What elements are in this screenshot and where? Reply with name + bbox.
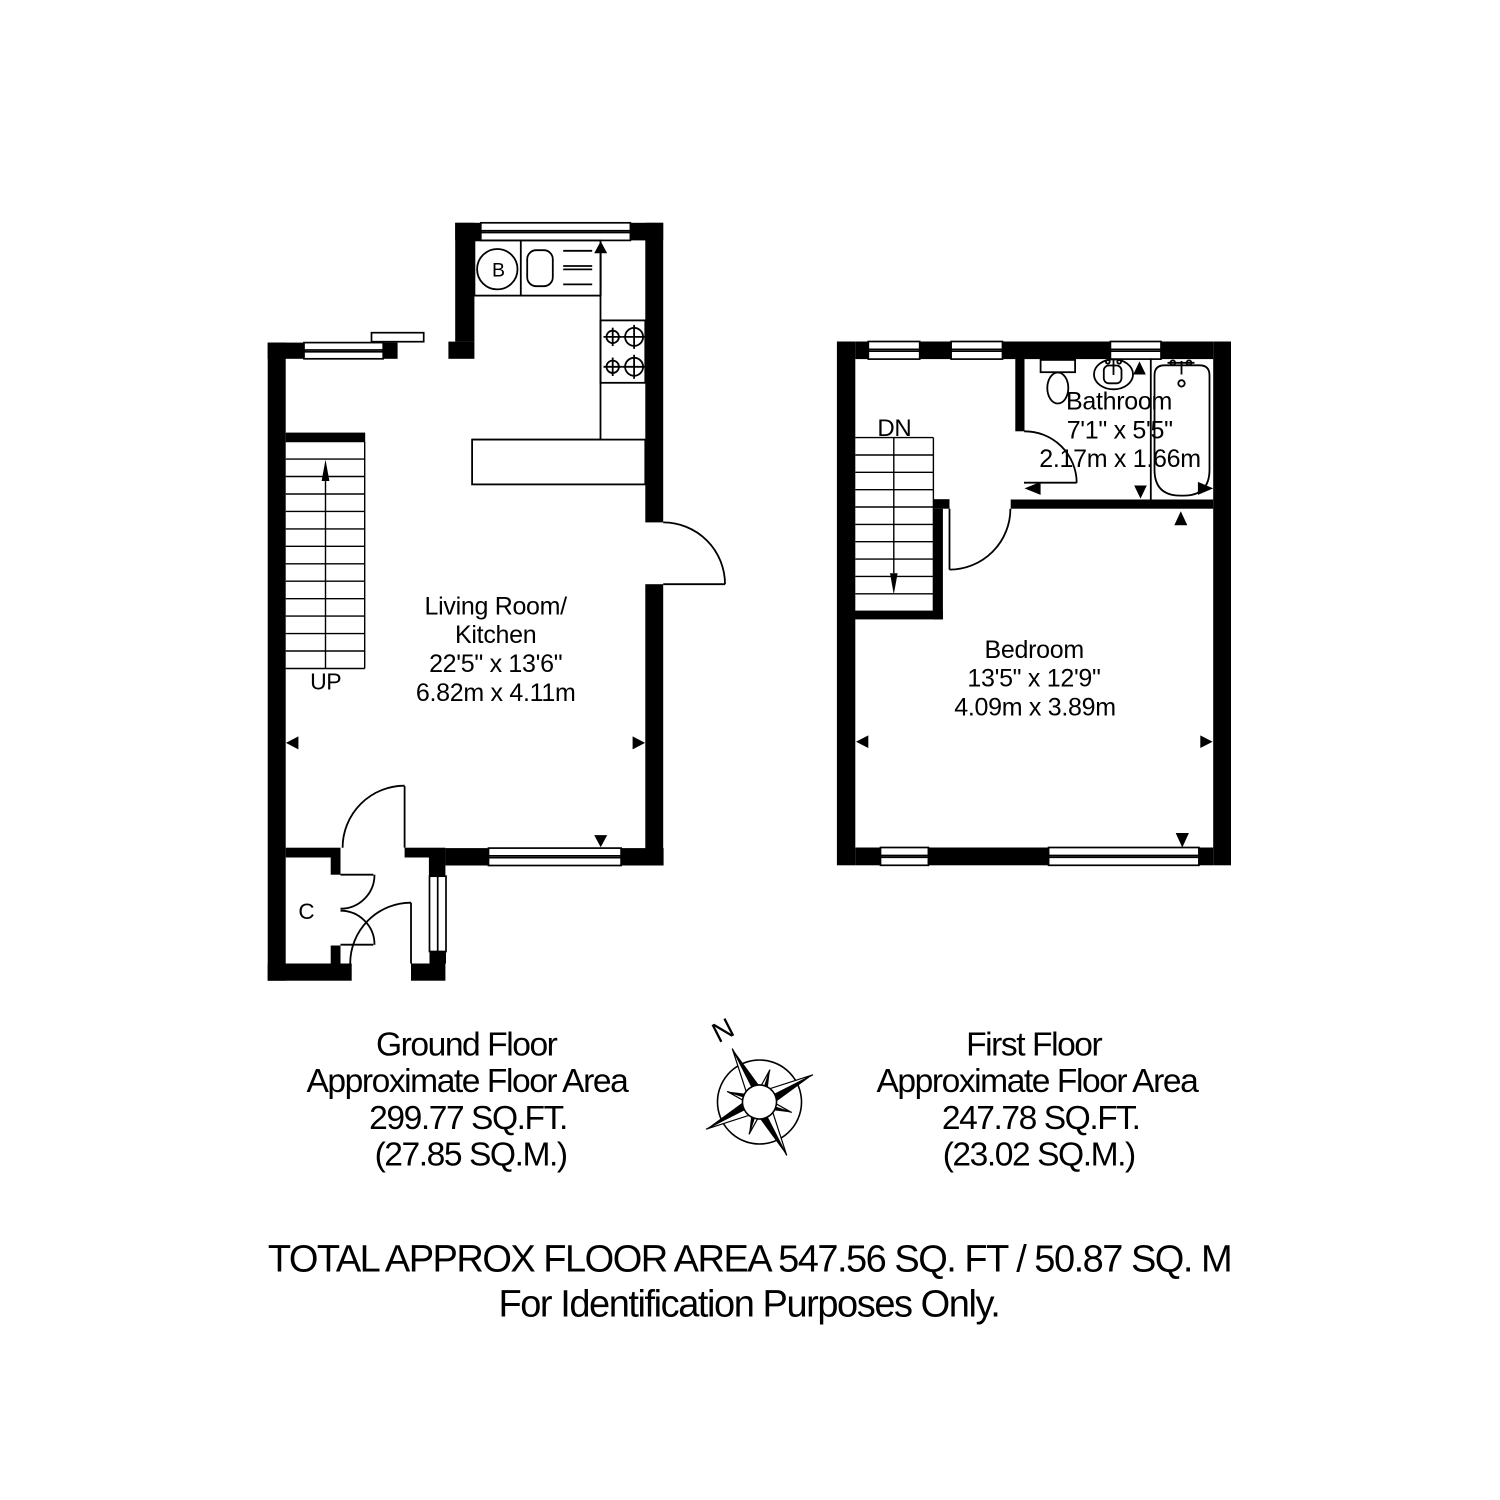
svg-text:(27.85 SQ.M.): (27.85 SQ.M.) bbox=[375, 1137, 567, 1174]
svg-text:Approximate Floor Area: Approximate Floor Area bbox=[876, 1063, 1199, 1100]
svg-text:Ground Floor: Ground Floor bbox=[376, 1027, 558, 1064]
svg-text:13'5" x 12'9": 13'5" x 12'9" bbox=[967, 665, 1100, 693]
svg-text:4.09m x 3.89m: 4.09m x 3.89m bbox=[954, 694, 1115, 722]
svg-text:C: C bbox=[298, 899, 314, 924]
svg-text:DN: DN bbox=[877, 415, 911, 442]
svg-text:For Identification Purposes On: For Identification Purposes Only. bbox=[498, 1283, 999, 1325]
svg-text:Approximate Floor Area: Approximate Floor Area bbox=[306, 1063, 629, 1100]
svg-text:299.77 SQ.FT.: 299.77 SQ.FT. bbox=[369, 1100, 567, 1137]
svg-text:B: B bbox=[492, 259, 505, 281]
svg-text:2.17m x 1.66m: 2.17m x 1.66m bbox=[1039, 445, 1200, 473]
svg-text:6.82m x 4.11m: 6.82m x 4.11m bbox=[416, 679, 576, 707]
svg-text:Living Room/: Living Room/ bbox=[425, 592, 568, 620]
svg-text:TOTAL APPROX FLOOR AREA 547.56: TOTAL APPROX FLOOR AREA 547.56 SQ. FT / … bbox=[268, 1239, 1231, 1281]
svg-text:7'1" x 5'5": 7'1" x 5'5" bbox=[1067, 416, 1173, 444]
svg-text:Kitchen: Kitchen bbox=[455, 621, 536, 649]
svg-text:(23.02 SQ.M.): (23.02 SQ.M.) bbox=[943, 1137, 1135, 1174]
svg-text:247.78 SQ.FT.: 247.78 SQ.FT. bbox=[942, 1100, 1140, 1137]
svg-text:Bedroom: Bedroom bbox=[985, 636, 1084, 664]
svg-text:First Floor: First Floor bbox=[966, 1027, 1102, 1064]
svg-text:22'5" x 13'6": 22'5" x 13'6" bbox=[429, 650, 562, 678]
svg-text:Bathroom: Bathroom bbox=[1066, 388, 1172, 416]
svg-text:UP: UP bbox=[310, 668, 341, 694]
